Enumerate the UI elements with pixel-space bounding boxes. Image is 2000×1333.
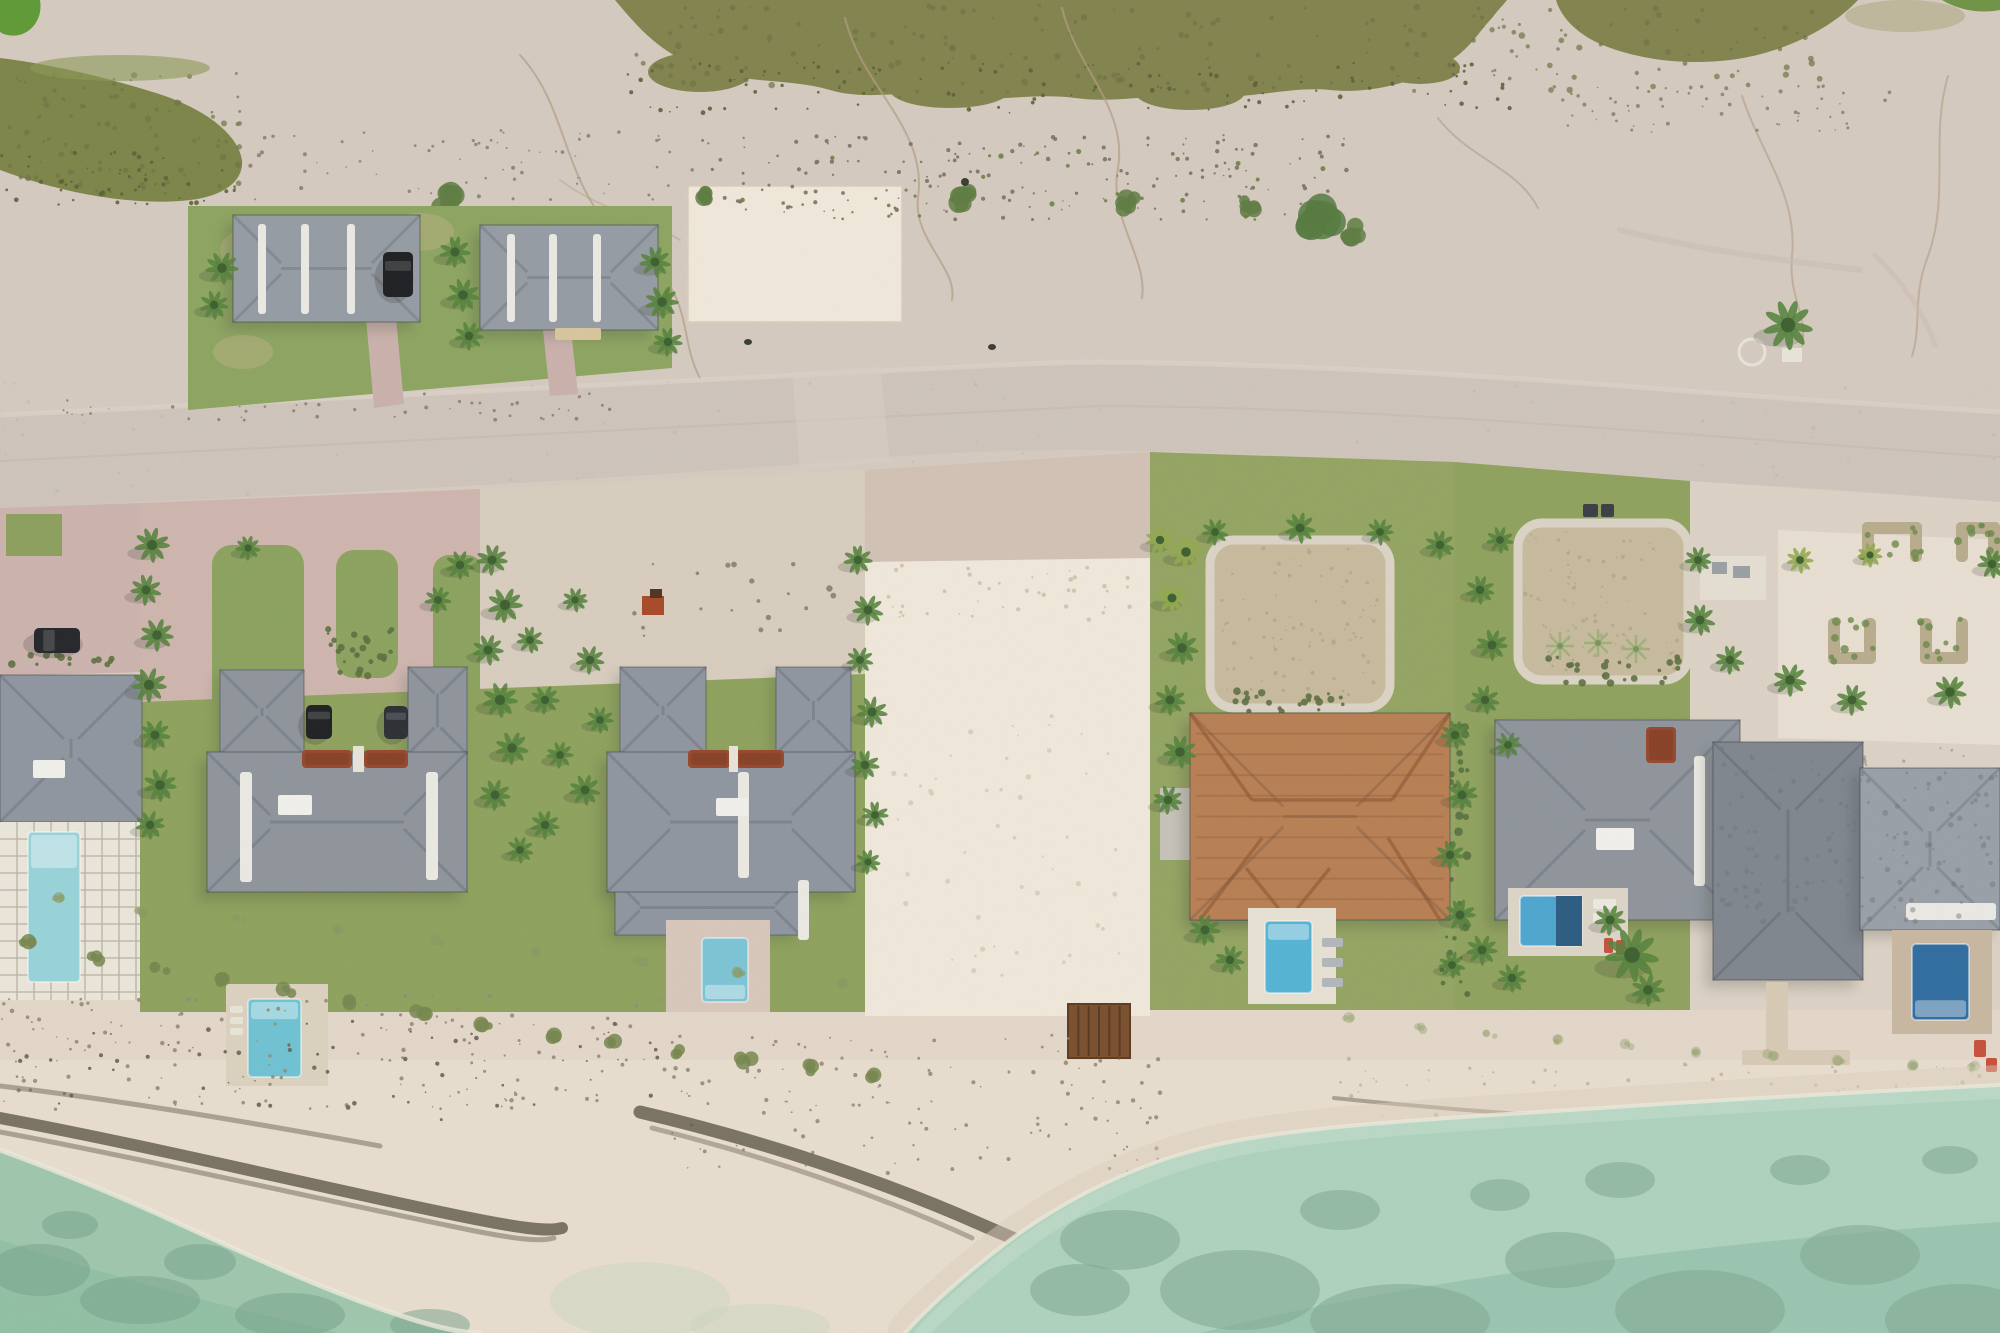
scene-root <box>0 0 2000 1333</box>
photo-grain <box>0 0 2000 1333</box>
aerial-photo-canvas <box>0 0 2000 1333</box>
aerial-photo <box>0 0 2000 1333</box>
